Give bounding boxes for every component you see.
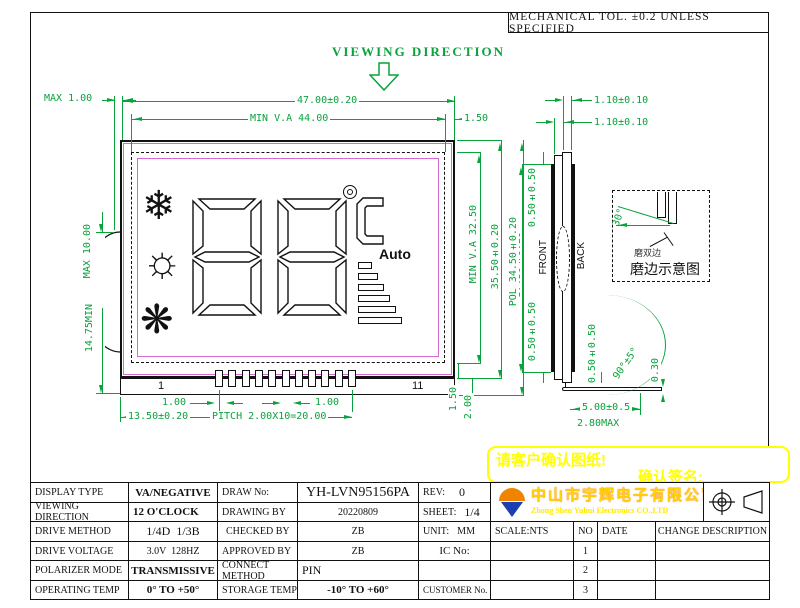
polarizer-value-cell: TRANSMISSIVE [128, 560, 218, 581]
lcd-pin [228, 370, 236, 387]
display-type-label-cell: DISPLAY TYPE [30, 482, 129, 503]
blank-cell-r5b [490, 560, 574, 581]
dim-pin-width-left: 1.00 [160, 397, 188, 408]
lcd-pin [308, 370, 316, 387]
bar-segment [358, 262, 372, 269]
pin-last-label: 11 [412, 380, 423, 392]
draw-no-value-cell: YH-LVN95156PA [297, 482, 419, 503]
detail-caption: 磨边示意图 [630, 259, 700, 279]
dim-pol: POL 34.50±0.20 [508, 215, 519, 308]
detail-glass-1 [657, 192, 666, 218]
dim-pin-width-mid: 1.00 [313, 397, 341, 408]
dim-glass2: 1.10±0.10 [592, 117, 650, 128]
approved-by-value-cell: ZB [297, 541, 419, 561]
degree-icon-inner [347, 189, 353, 195]
approved-by-label-cell: APPROVED BY [217, 541, 298, 561]
dim-pol-bottom: 0.50±0.50 [527, 300, 538, 363]
storage-temp-value-cell: -10° TO +60° [297, 580, 419, 600]
tolerance-note-box: MECHANICAL TOL. ±0.2 UNLESS SPECIFIED [508, 12, 769, 33]
dim-bump-pos: 14.75MIN [84, 302, 95, 354]
connect-method-label-cell: CONNECT METHOD [217, 560, 298, 581]
lcd-pin [242, 370, 250, 387]
no-header-cell: NO [573, 521, 598, 542]
seven-segment-digit-1 [192, 198, 262, 316]
blank-cell-r5a [418, 560, 491, 581]
rev-cell: REV:0 [418, 482, 491, 503]
checked-by-value-cell: ZB [297, 521, 419, 542]
company-cell: 中山市宇辉电子有限公司 Zhong Shen Yuhui Electronics… [490, 482, 704, 522]
bar-segment [358, 295, 390, 302]
drive-voltage-value-cell: 3.0V 128HZ [128, 541, 218, 561]
viewing-direction-label-cell: VIEWING DIRECTION [30, 502, 129, 522]
lcd-pin [295, 370, 303, 387]
ic-no-value-cell [490, 541, 574, 561]
auto-label: Auto [379, 246, 411, 262]
revision-no-cell-3: 3 [573, 580, 598, 600]
lcd-side-bump [105, 230, 121, 354]
polarizer-label-cell: POLARIZER MODE [30, 560, 129, 581]
lcd-pin [215, 370, 223, 387]
side-lc-ellipse [556, 226, 570, 292]
celsius-c-segment [356, 197, 384, 245]
dim-va-height: MIN V.A 32.50 [468, 203, 479, 285]
side-front-label: FRONT [538, 238, 549, 276]
drive-method-value-cell: 1/4D 1/3B [128, 521, 218, 542]
fan-icon: ❋ [140, 298, 174, 342]
company-logo-icon [499, 488, 525, 501]
lcd-pin [282, 370, 290, 387]
checked-by-label-cell: CHECKED BY [217, 521, 298, 542]
dim-foot-thickness: 0.30 [650, 356, 661, 384]
date-header-cell: DATE [597, 521, 656, 542]
drawing-by-value-cell: 20220809 [297, 502, 419, 522]
revision-desc-cell-3 [655, 580, 770, 600]
lcd-pin [268, 370, 276, 387]
viewing-direction-arrow-icon [369, 62, 399, 92]
seven-segment-digit-2 [277, 198, 347, 316]
ic-no-cell: IC No: [418, 541, 491, 561]
company-name-cn: 中山市宇辉电子有限公司 [531, 489, 704, 504]
customer-note-line1: 请客户确认图纸! [496, 449, 606, 470]
sheet-cell: SHEET:1/4 [418, 502, 491, 522]
dim-pin-offset: 13.50±0.20 [126, 411, 190, 422]
dim-pitch: PITCH 2.00X10=20.00 [210, 411, 328, 422]
dim-glass-height: 35.50±0.20 [490, 222, 501, 291]
pin-first-label: 1 [158, 380, 164, 392]
projection-symbol-cell [703, 482, 770, 522]
customer-no-value-cell [490, 580, 574, 600]
tolerance-note: MECHANICAL TOL. ±0.2 UNLESS SPECIFIED [509, 11, 768, 35]
bar-graph [358, 262, 410, 330]
drawing-by-label-cell: DRAWING BY [217, 502, 298, 522]
storage-temp-label-cell: STORAGE TEMP [217, 580, 298, 600]
display-type-value-cell: VA/NEGATIVE [128, 482, 218, 503]
dim-glass1: 1.10±0.10 [592, 95, 650, 106]
dim-pol-top: 0.50±0.50 [527, 166, 538, 229]
dim-foot-max: 2.80MAX [575, 418, 621, 429]
lcd-pin [321, 370, 329, 387]
change-header-cell: CHANGE DESCRIPTION [655, 521, 770, 542]
side-back-label: BACK [576, 240, 587, 271]
detail-glass-2 [668, 192, 677, 224]
dim-max-offset: MAX 1.00 [42, 93, 94, 104]
lcd-pin [255, 370, 263, 387]
revision-no-cell-2: 2 [573, 560, 598, 581]
bar-segment [358, 284, 384, 291]
connect-method-value-cell: PIN [297, 560, 419, 581]
bar-segment [358, 273, 378, 280]
dim-right-margin: 1.50 [462, 113, 490, 124]
revision-date-cell-2 [597, 560, 656, 581]
dim-bump: MAX 10.00 [82, 222, 93, 280]
customer-no-cell: CUSTOMER No. [418, 580, 491, 600]
unit-cell: UNIT:MM [418, 521, 491, 542]
dim-strip-height: 2.00 [463, 393, 474, 421]
bar-segment [358, 306, 396, 313]
scale-cell: SCALE:NTS [490, 521, 574, 542]
viewing-direction-value-cell: 12 O'CLOCK [128, 502, 218, 522]
dim-va-width: MIN V.A 44.00 [248, 113, 330, 124]
revision-no-cell-1: 1 [573, 541, 598, 561]
bend-angle-arc [548, 295, 666, 395]
engineering-drawing: MECHANICAL TOL. ±0.2 UNLESS SPECIFIED VI… [0, 0, 800, 608]
revision-date-cell-1 [597, 541, 656, 561]
dim-bottom-margin: 1.50 [448, 385, 459, 413]
operating-temp-value-cell: 0° TO +50° [128, 580, 218, 600]
bar-segment [358, 317, 402, 324]
drive-method-label-cell: DRIVE METHOD [30, 521, 129, 542]
company-name-en: Zhong Shen Yuhui Electronics CO.,LTD [531, 507, 704, 515]
snowflake-icon: ❄ [142, 184, 176, 228]
viewing-direction-label: VIEWING DIRECTION [332, 44, 505, 60]
third-angle-projection-icon [708, 488, 766, 516]
operating-temp-label-cell: OPERATING TEMP [30, 580, 129, 600]
revision-desc-cell-2 [655, 560, 770, 581]
lcd-pin [335, 370, 343, 387]
sun-icon: ☼ [142, 238, 182, 286]
revision-date-cell-3 [597, 580, 656, 600]
lcd-pin [348, 370, 356, 387]
detail-edge-note: 磨双边 [634, 246, 661, 259]
dim-pin-length: 5.00±0.5 [580, 402, 632, 413]
drive-voltage-label-cell: DRIVE VOLTAGE [30, 541, 129, 561]
revision-desc-cell-1 [655, 541, 770, 561]
draw-no-label-cell: DRAW No: [217, 482, 298, 503]
dim-width: 47.00±0.20 [295, 95, 359, 106]
